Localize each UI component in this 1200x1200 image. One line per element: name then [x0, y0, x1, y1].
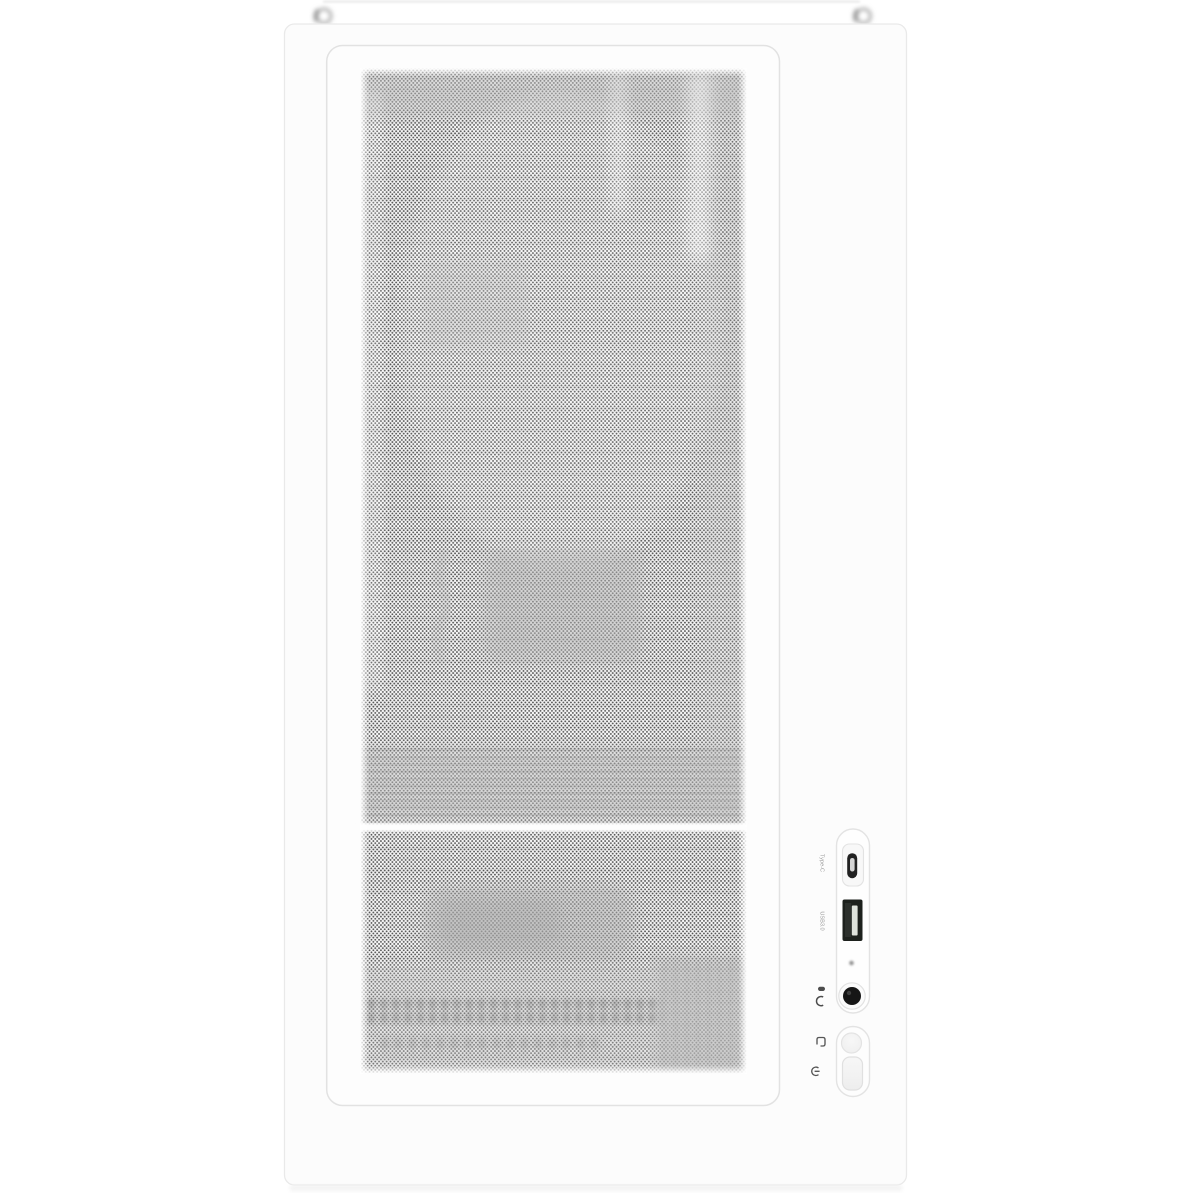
svg-text:Type-C: Type-C — [819, 854, 825, 872]
svg-text:USB3.0: USB3.0 — [819, 911, 825, 930]
